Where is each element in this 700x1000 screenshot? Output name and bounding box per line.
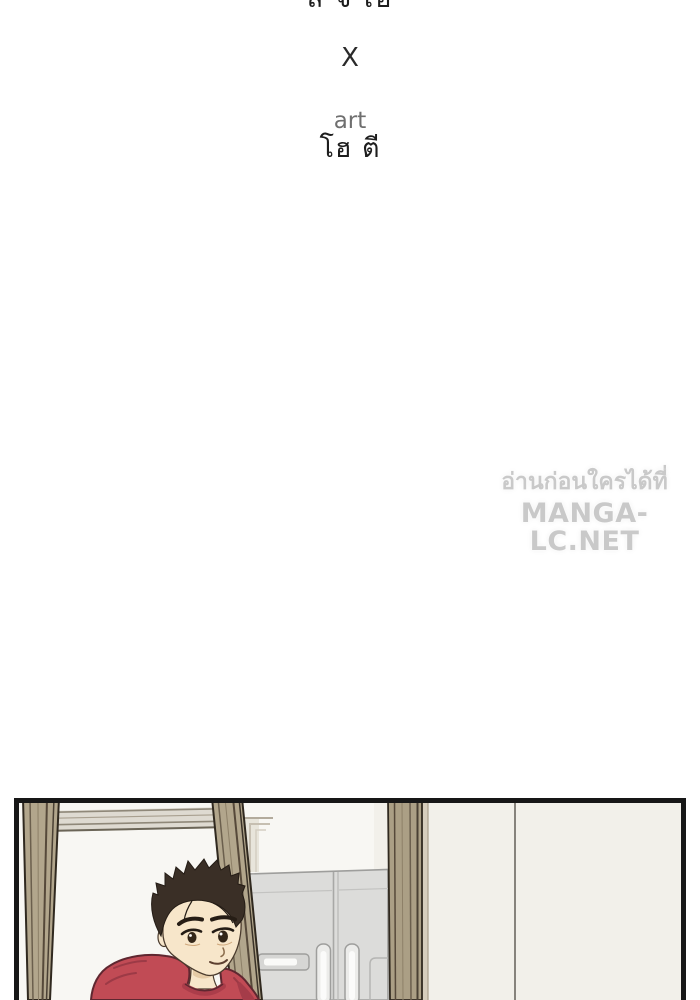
credit-author-name: ล จ เฮ [0,0,700,13]
fridge-dispenser [258,954,309,970]
credit-artist-name: โฮ ตี [0,132,700,166]
comic-panel [14,798,686,1000]
watermark-site-name: MANGA-LC.NET [477,500,692,556]
right-door-jamb [388,798,428,1000]
site-watermark: อ่านก่อนใครได้ที่ MANGA-LC.NET [477,464,692,556]
credit-separator: X [0,44,700,72]
fridge-handle-left [317,944,331,1000]
credit-role-label: art [0,109,700,134]
refrigerator [247,870,388,1000]
doorway-top-molding [56,807,218,831]
manga-page: ล จ เฮ X art โฮ ตี อ่านก่อนใครได้ที่ MAN… [0,0,700,1000]
watermark-tagline: อ่านก่อนใครได้ที่ [477,464,692,500]
fridge-handle-right [345,944,359,1000]
panel-scene [14,798,686,1000]
